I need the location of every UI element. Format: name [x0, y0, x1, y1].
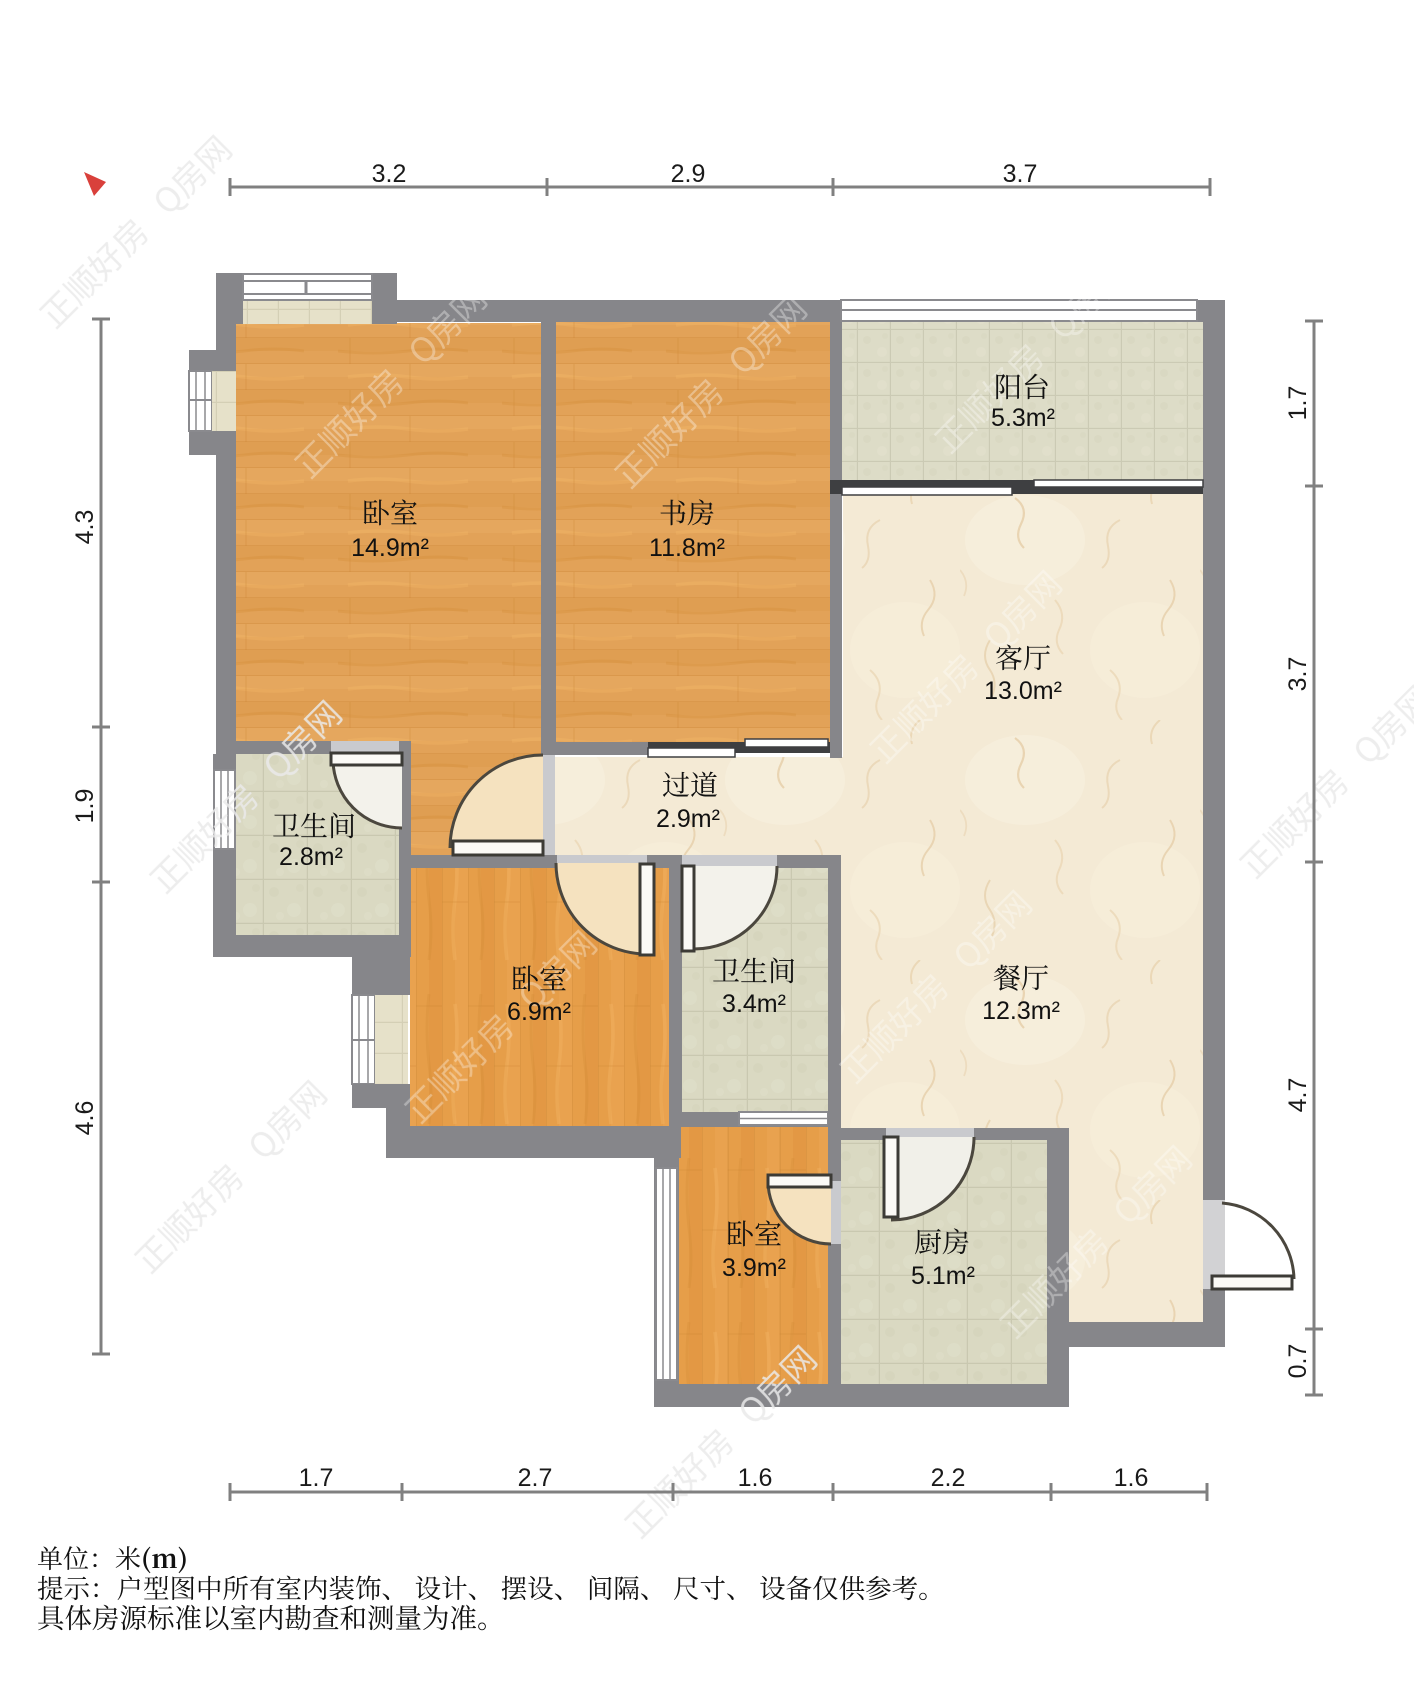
svg-text:2.8m²: 2.8m² [279, 843, 343, 871]
svg-text:1.7: 1.7 [299, 1464, 334, 1492]
svg-text:4.7: 4.7 [1284, 1078, 1312, 1113]
svg-text:3.9m²: 3.9m² [722, 1254, 786, 1282]
svg-text:4.3: 4.3 [71, 510, 99, 545]
svg-text:2.9m²: 2.9m² [656, 805, 720, 833]
svg-text:3.4m²: 3.4m² [722, 990, 786, 1018]
svg-text:6.9m²: 6.9m² [507, 998, 571, 1026]
svg-text:1.6: 1.6 [738, 1464, 773, 1492]
svg-text:2.7: 2.7 [518, 1464, 553, 1492]
svg-text:13.0m²: 13.0m² [984, 677, 1062, 705]
svg-text:3.2: 3.2 [372, 160, 407, 188]
svg-text:11.8m²: 11.8m² [649, 534, 725, 562]
svg-text:14.9m²: 14.9m² [351, 534, 429, 562]
svg-text:2.9: 2.9 [671, 160, 706, 188]
svg-text:4.6: 4.6 [71, 1101, 99, 1136]
svg-text:1.7: 1.7 [1284, 386, 1312, 421]
svg-text:12.3m²: 12.3m² [982, 997, 1060, 1025]
svg-text:5.1m²: 5.1m² [911, 1262, 975, 1290]
svg-text:2.2: 2.2 [931, 1464, 966, 1492]
svg-text:5.3m²: 5.3m² [991, 404, 1055, 432]
svg-text:0.7: 0.7 [1284, 1344, 1312, 1379]
svg-text:1.9: 1.9 [71, 789, 99, 824]
svg-text:1.6: 1.6 [1114, 1464, 1149, 1492]
svg-text:3.7: 3.7 [1003, 160, 1038, 188]
svg-text:3.7: 3.7 [1284, 657, 1312, 692]
